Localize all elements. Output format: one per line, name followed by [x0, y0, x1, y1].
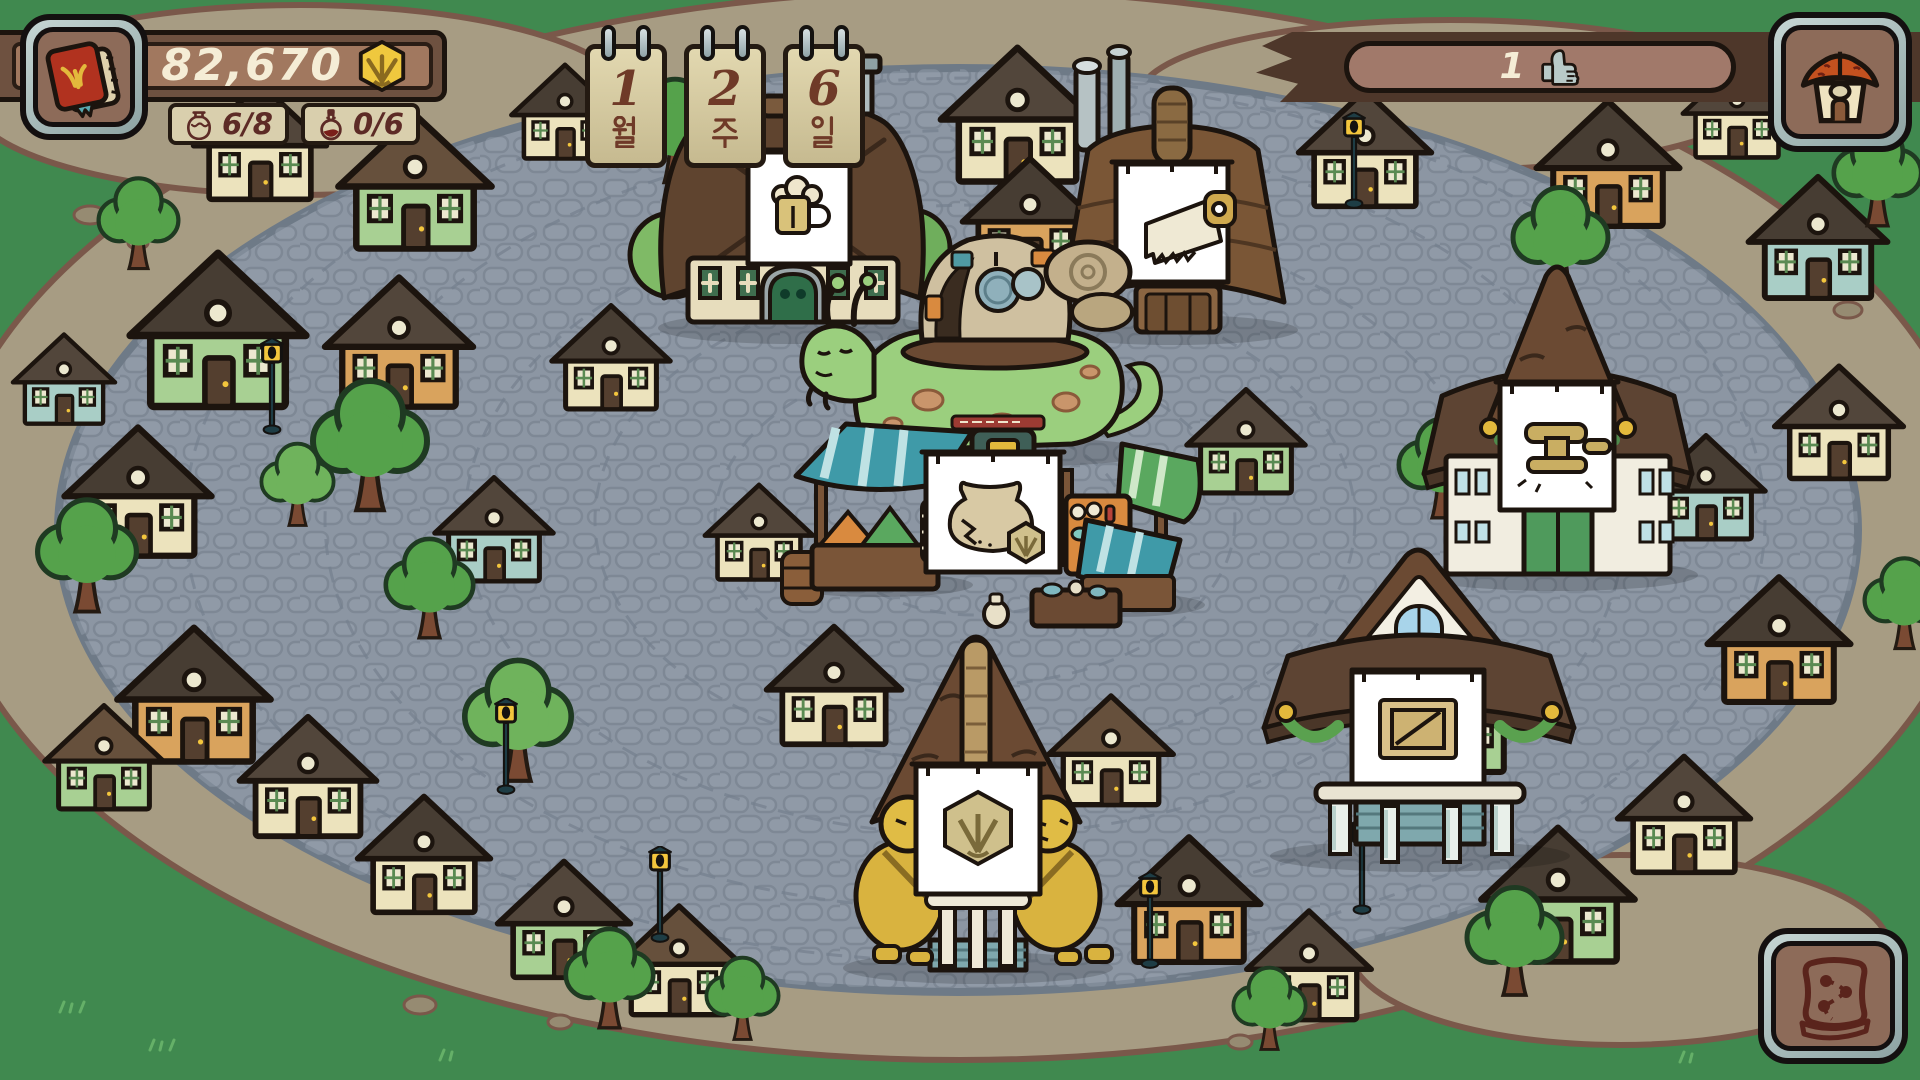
journal-button[interactable] — [20, 14, 148, 140]
game-screen: 82,670 — [0, 0, 1920, 1080]
home-button[interactable] — [1768, 12, 1912, 152]
village-map — [0, 0, 1920, 1080]
town-hall-sign-banner — [1496, 382, 1618, 510]
red-book-icon — [41, 34, 127, 120]
bank-sign-banner — [912, 764, 1044, 894]
crate-icon — [1380, 700, 1456, 758]
tavern-sign-banner — [744, 150, 852, 264]
house-icon — [1793, 35, 1887, 129]
warehouse-sign-banner — [1352, 670, 1484, 784]
hex-coin-icon — [945, 792, 1011, 864]
map-button[interactable] — [1758, 928, 1908, 1064]
map-icon — [1785, 951, 1881, 1041]
hex-coin-icon — [1009, 523, 1043, 562]
market-sign-banner — [922, 452, 1064, 572]
